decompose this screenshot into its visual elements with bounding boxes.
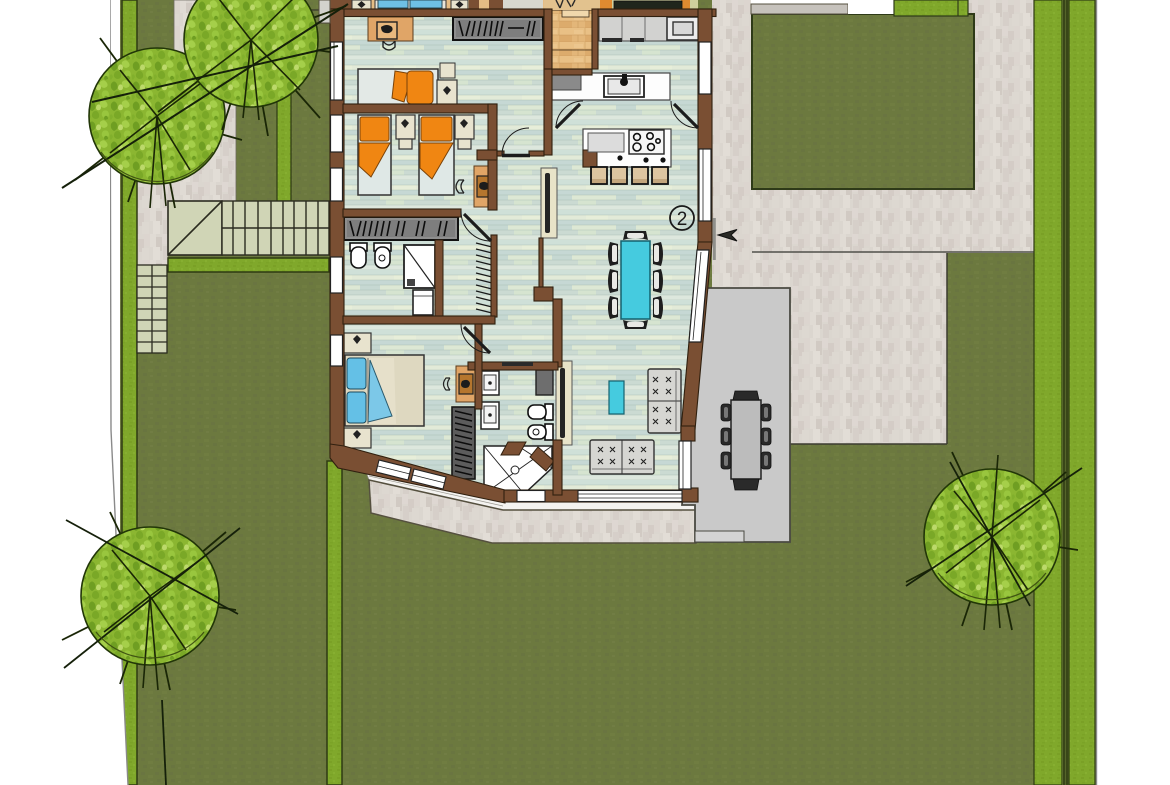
svg-text:2: 2 <box>677 209 688 230</box>
